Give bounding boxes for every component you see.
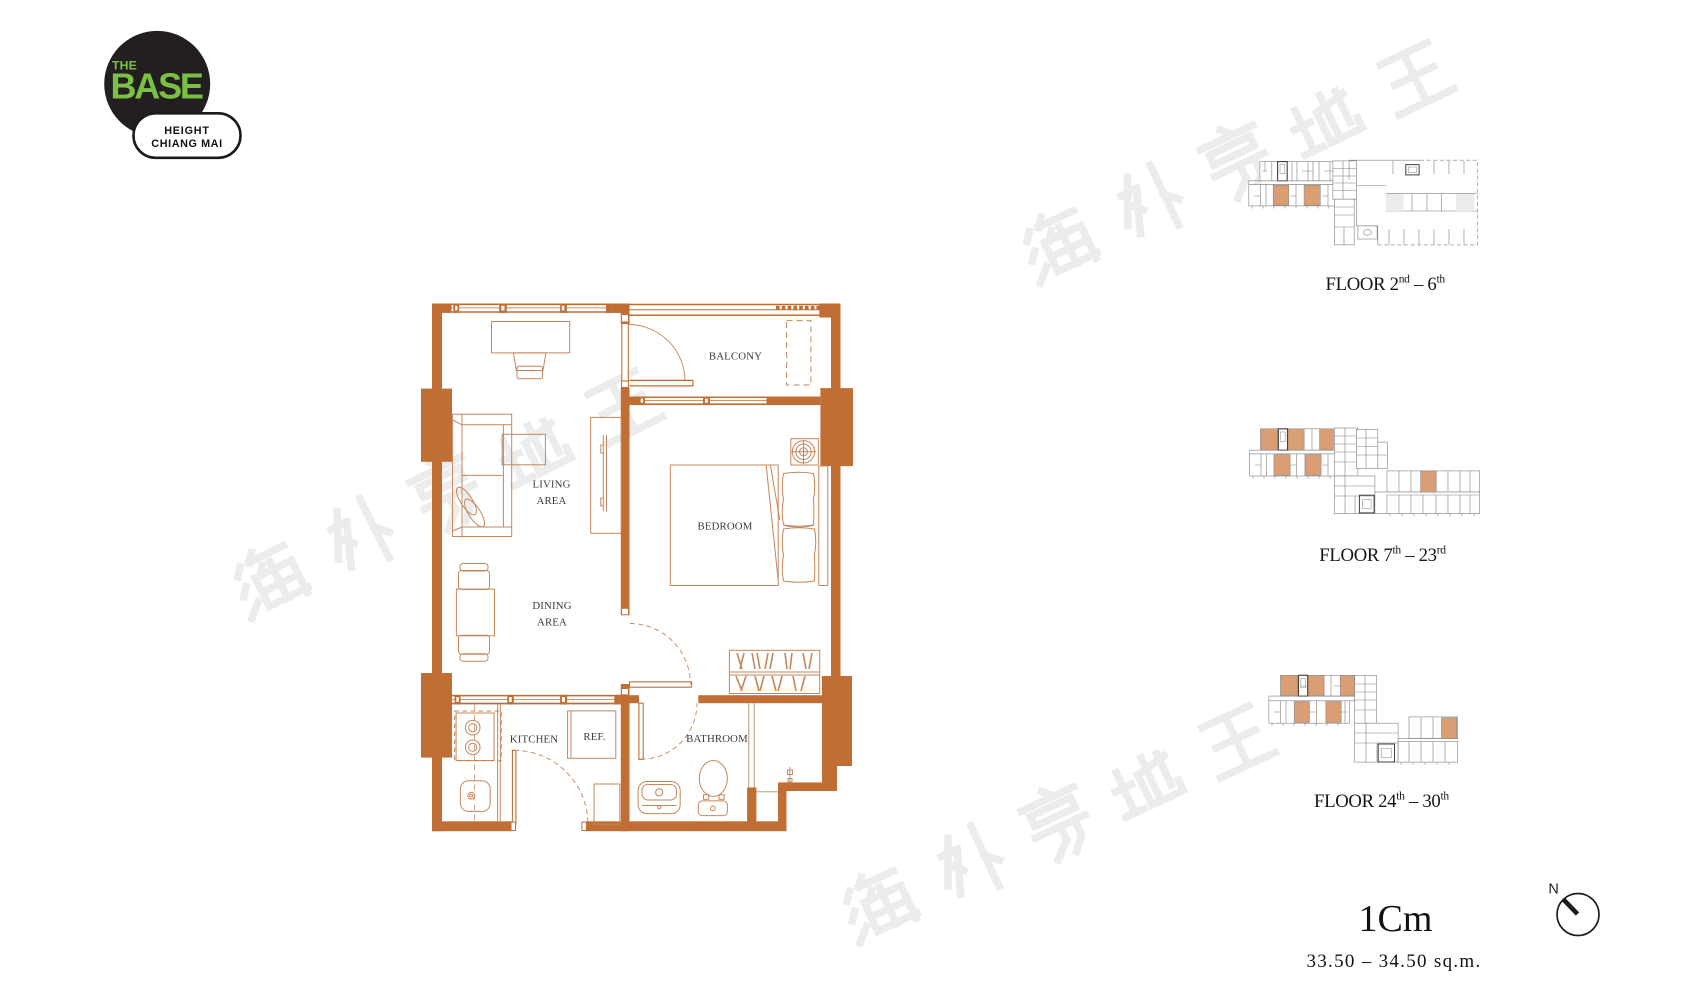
svg-text:1Cm: 1Cm bbox=[1359, 898, 1433, 940]
svg-text:AREA: AREA bbox=[537, 617, 567, 629]
svg-text:BEDROOM: BEDROOM bbox=[697, 521, 752, 533]
svg-text:N: N bbox=[1548, 882, 1558, 898]
svg-text:LIVING: LIVING bbox=[532, 479, 570, 491]
svg-text:33.50 – 34.50 sq.m.: 33.50 – 34.50 sq.m. bbox=[1306, 951, 1481, 972]
svg-text:HEIGHT: HEIGHT bbox=[164, 125, 210, 137]
svg-text:BATHROOM: BATHROOM bbox=[686, 733, 748, 745]
svg-text:BALCONY: BALCONY bbox=[709, 351, 762, 363]
svg-text:CHIANG MAI: CHIANG MAI bbox=[151, 138, 222, 150]
svg-text:BASE: BASE bbox=[111, 66, 203, 107]
svg-text:FLOOR 24th – 30th: FLOOR 24th – 30th bbox=[1314, 791, 1449, 813]
svg-text:KITCHEN: KITCHEN bbox=[510, 734, 558, 746]
svg-text:AREA: AREA bbox=[537, 495, 567, 507]
svg-text:FLOOR 7th – 23rd: FLOOR 7th – 23rd bbox=[1319, 545, 1446, 567]
svg-text:FLOOR 2nd – 6th: FLOOR 2nd – 6th bbox=[1326, 273, 1446, 295]
svg-text:DINING: DINING bbox=[532, 600, 571, 612]
svg-text:REF.: REF. bbox=[583, 731, 605, 743]
